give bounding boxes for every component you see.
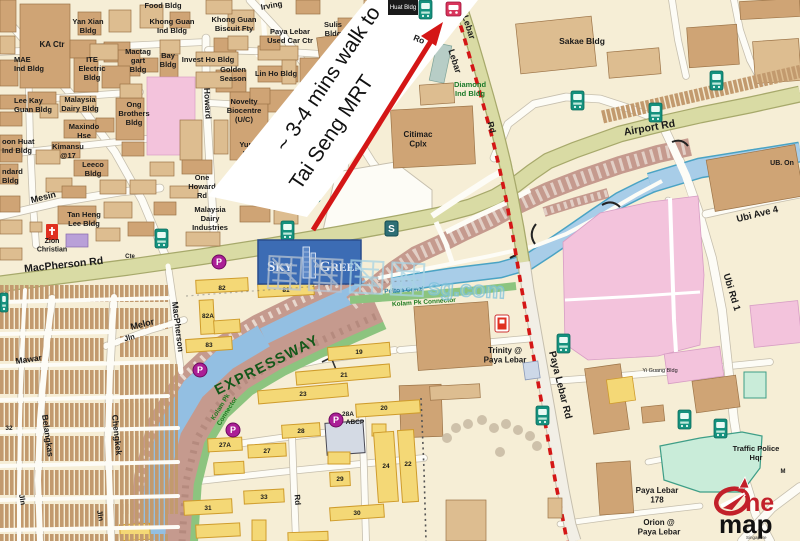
- svg-text:21: 21: [340, 372, 348, 379]
- svg-text:KA Ctr: KA Ctr: [39, 40, 64, 49]
- svg-text:28: 28: [297, 428, 305, 435]
- svg-text:S: S: [388, 224, 395, 235]
- svg-text:P: P: [197, 365, 203, 375]
- svg-text:Food Bldg: Food Bldg: [144, 1, 181, 10]
- svg-text:Howard: Howard: [202, 88, 214, 120]
- svg-text:GoldenSeason: GoldenSeason: [220, 65, 247, 83]
- svg-text:oon HuatInd Bldg: oon HuatInd Bldg: [2, 137, 35, 155]
- svg-text:Yi Guang Bldg: Yi Guang Bldg: [642, 368, 677, 374]
- svg-text:ABCP: ABCP: [346, 419, 365, 426]
- svg-text:P: P: [230, 425, 236, 435]
- svg-text:19: 19: [355, 349, 363, 356]
- svg-text:LeecoBldg: LeecoBldg: [82, 160, 104, 178]
- svg-text:32: 32: [5, 425, 13, 432]
- svg-text:UB. On: UB. On: [770, 160, 794, 167]
- svg-text:BayBldg: BayBldg: [160, 51, 177, 69]
- svg-text:Lin Ho Bldg: Lin Ho Bldg: [255, 69, 297, 78]
- svg-text:24: 24: [382, 463, 390, 470]
- svg-text:Paya LebarUsed Car Ctr: Paya LebarUsed Car Ctr: [267, 27, 313, 45]
- svg-text:27A: 27A: [219, 442, 231, 449]
- svg-text:23: 23: [299, 391, 307, 398]
- svg-text:33: 33: [260, 494, 268, 501]
- svg-text:Tan HengLee Bldg: Tan HengLee Bldg: [67, 210, 101, 228]
- svg-text:Trinity @Paya Lebar: Trinity @Paya Lebar: [484, 346, 527, 365]
- svg-text:MalaysiaDairy Bldg: MalaysiaDairy Bldg: [61, 95, 99, 113]
- svg-text:82A: 82A: [202, 313, 214, 320]
- svg-text:31: 31: [204, 505, 212, 512]
- svg-text:29: 29: [336, 476, 344, 483]
- svg-text:Khong GuanBiscuit Fty: Khong GuanBiscuit Fty: [212, 15, 257, 33]
- svg-text:Sakae Bldg: Sakae Bldg: [559, 36, 605, 46]
- svg-text:20: 20: [380, 405, 388, 412]
- svg-text:P: P: [333, 415, 339, 425]
- svg-text:Invest Ho Bldg: Invest Ho Bldg: [182, 55, 235, 64]
- svg-text:M: M: [781, 469, 786, 475]
- svg-text:Orion @Paya Lebar: Orion @Paya Lebar: [638, 518, 681, 537]
- svg-text:27: 27: [263, 448, 271, 455]
- svg-text:DiamondInd Bldg: DiamondInd Bldg: [454, 80, 487, 98]
- svg-text:P: P: [216, 257, 222, 267]
- svg-text:82: 82: [218, 285, 226, 292]
- svg-text:Rd: Rd: [293, 494, 303, 506]
- svg-text:Singapore: Singapore: [746, 535, 767, 540]
- svg-text:28A: 28A: [342, 411, 354, 418]
- svg-text:30: 30: [353, 510, 361, 517]
- svg-text:22: 22: [404, 461, 412, 468]
- svg-text:Huat Bldg: Huat Bldg: [390, 5, 416, 11]
- svg-text:Cte: Cte: [125, 254, 135, 260]
- svg-text:Jln: Jln: [95, 509, 106, 522]
- svg-text:Jln: Jln: [17, 493, 28, 506]
- svg-text:83: 83: [205, 342, 213, 349]
- svg-text:sg.com: sg.com: [428, 274, 506, 303]
